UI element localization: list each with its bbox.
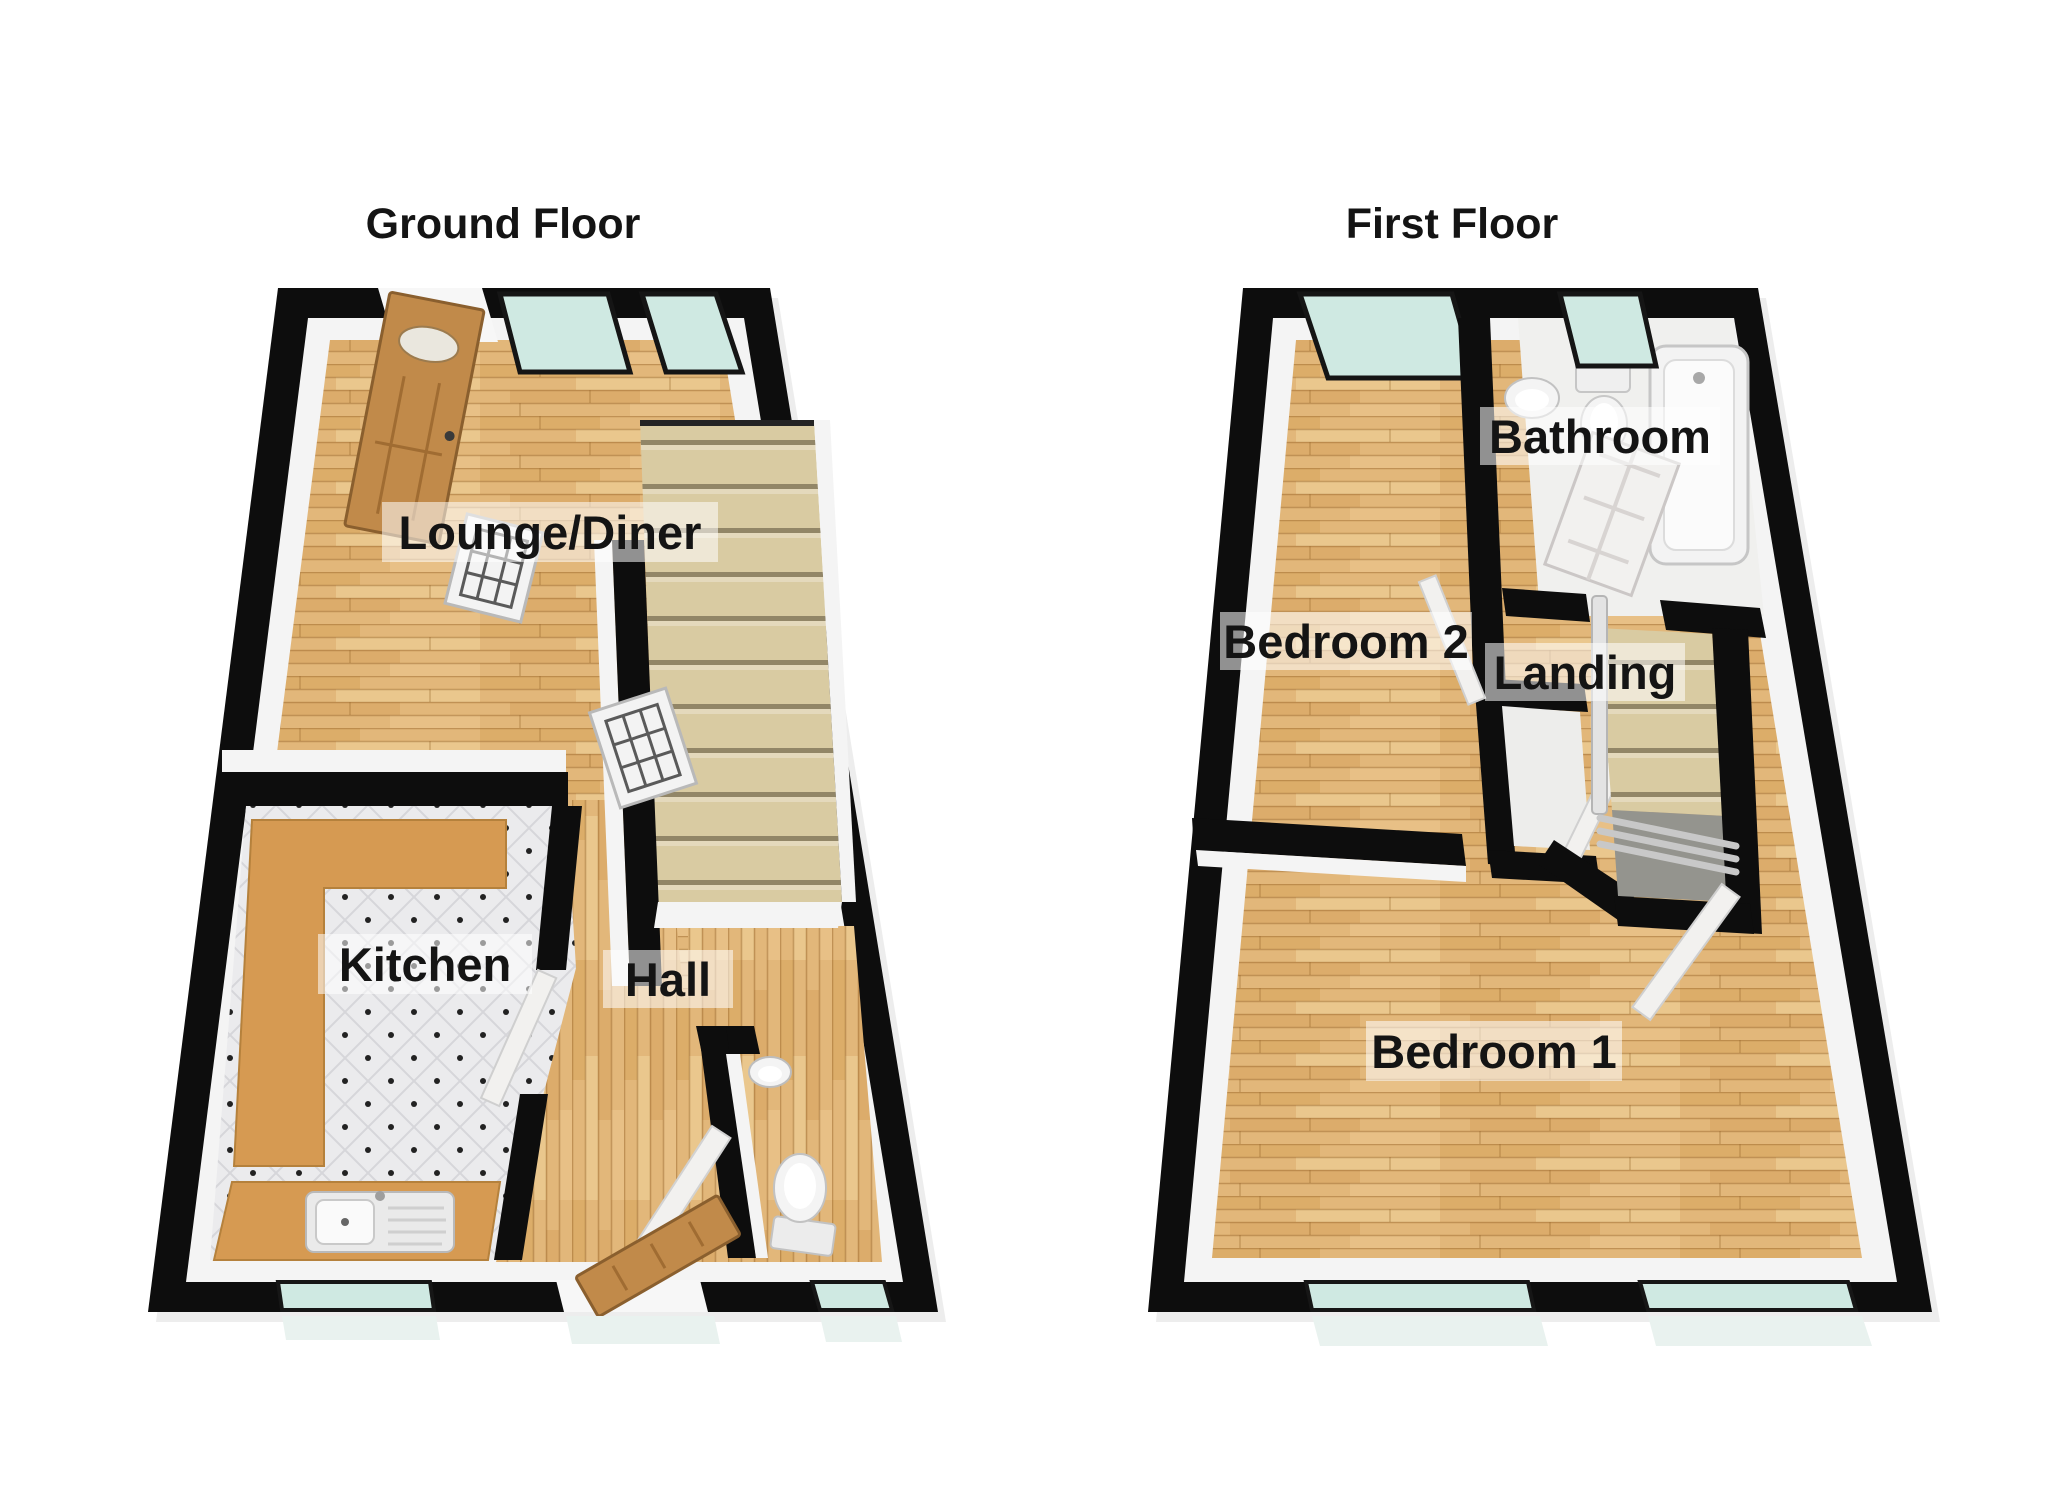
faucet-icon: [375, 1191, 385, 1201]
room-label-text: Lounge/Diner: [399, 506, 702, 559]
bathroom-window: [1560, 294, 1656, 366]
window-sill: [820, 1316, 902, 1342]
room-label-bathroom: Bathroom: [1480, 407, 1720, 465]
room-label-kitchen: Kitchen: [318, 934, 532, 994]
bedroom2-window: [1300, 294, 1476, 378]
window-sill: [1312, 1316, 1548, 1346]
room-label-text: Kitchen: [339, 938, 511, 991]
entrance-step: [566, 1316, 720, 1344]
window-sill: [282, 1316, 440, 1340]
room-label-text: Landing: [1494, 646, 1677, 699]
room-label-hall: Hall: [603, 950, 733, 1008]
floor-title-first: First Floor: [1346, 200, 1559, 248]
room-label-text: Bathroom: [1489, 410, 1711, 463]
stair-steps: [640, 420, 842, 902]
ground-floor-plan: Lounge/Diner Kitchen Hall Ground Floor: [148, 200, 946, 1344]
room-label-landing: Landing: [1485, 643, 1685, 701]
floor-title-ground: Ground Floor: [366, 200, 641, 248]
hall-sidelight-window: [812, 1282, 892, 1310]
stair-bottom-face: [654, 902, 842, 928]
bedroom1-window: [1640, 1282, 1856, 1310]
room-label-text: Bedroom 2: [1223, 615, 1469, 668]
kitchen-wall-face: [222, 750, 566, 772]
room-label-bedroom2: Bedroom 2: [1220, 612, 1472, 670]
floorplan-svg: Lounge/Diner Kitchen Hall Ground Floor: [0, 0, 2048, 1489]
bedroom1-window: [1306, 1282, 1534, 1310]
kitchen-top-wall: [222, 772, 568, 806]
window-sill: [1648, 1316, 1872, 1346]
bath-tap-icon: [1693, 372, 1705, 384]
room-label-text: Hall: [625, 953, 711, 1006]
kitchen-window: [278, 1282, 434, 1310]
newel-post: [1592, 596, 1607, 814]
room-label-lounge-diner: Lounge/Diner: [382, 502, 718, 562]
lounge-window: [500, 294, 630, 372]
first-floor-plan: Bathroom Bedroom 2 Landing Bedroom 1 Fir…: [1148, 200, 1940, 1346]
kitchen-sink: [306, 1191, 454, 1252]
wc-sink-basin: [758, 1066, 782, 1082]
room-label-text: Bedroom 1: [1371, 1025, 1617, 1078]
floorplan-canvas: Lounge/Diner Kitchen Hall Ground Floor: [0, 0, 2048, 1489]
room-label-bedroom1: Bedroom 1: [1366, 1021, 1622, 1081]
